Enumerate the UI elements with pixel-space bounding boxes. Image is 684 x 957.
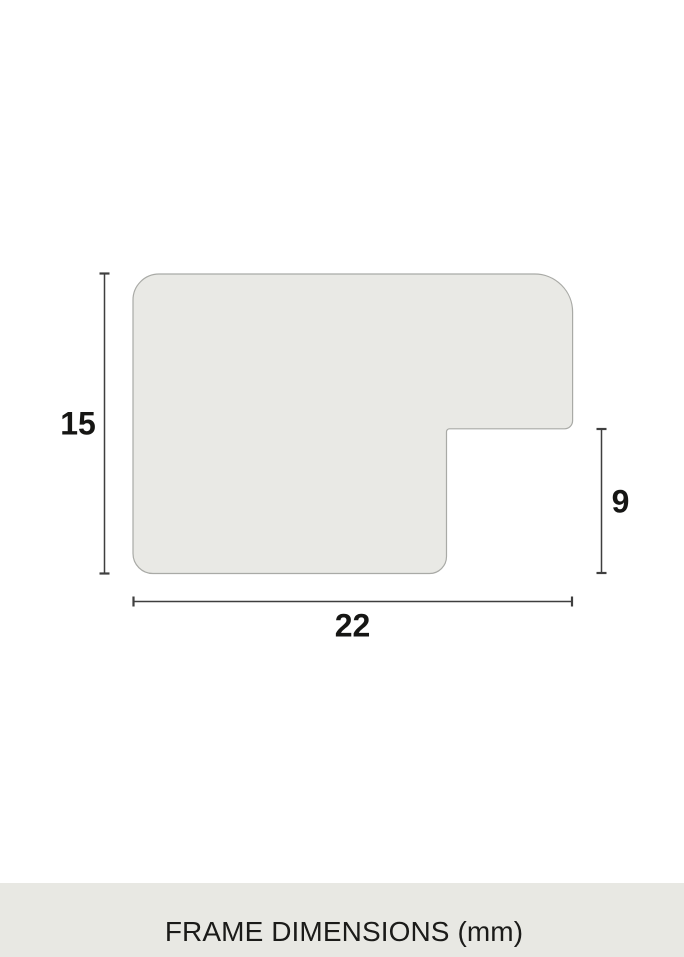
svg-text:22: 22 (335, 608, 371, 644)
svg-text:9: 9 (612, 484, 630, 520)
svg-text:15: 15 (60, 406, 96, 442)
